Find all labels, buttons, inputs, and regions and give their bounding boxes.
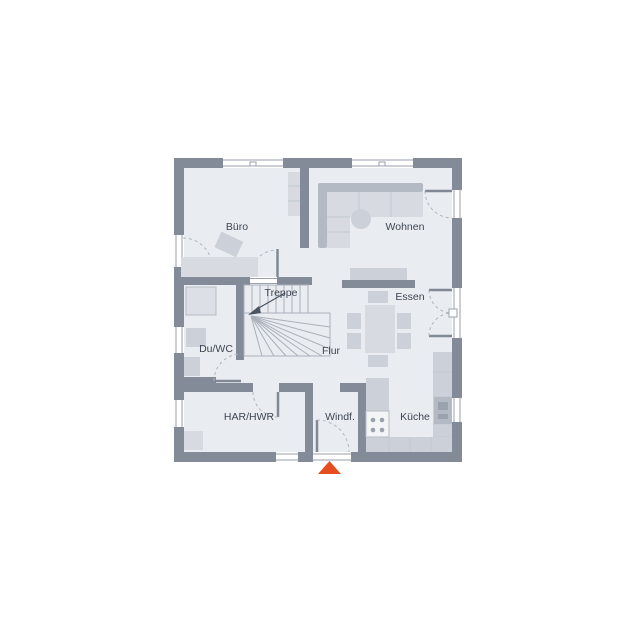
coffee-table: [351, 209, 371, 229]
utility-appliance: [184, 431, 203, 450]
wall-duwc-south: [184, 377, 216, 385]
window-har-west: [174, 400, 184, 427]
dining-chair: [397, 313, 411, 329]
oven-drawer: [438, 414, 448, 419]
label-windf: Windf.: [325, 411, 355, 423]
window-duwc-west: [174, 327, 184, 353]
label-treppe: Treppe: [265, 287, 298, 299]
buero-shelf: [288, 172, 300, 216]
window-buero-north: [223, 158, 283, 168]
oven: [434, 397, 452, 424]
dining-chair: [397, 333, 411, 349]
dining-chair: [368, 291, 388, 303]
label-essen: Essen: [395, 291, 424, 303]
kitchen-counter-south: [366, 437, 452, 452]
floor-plan-canvas: Büro Wohnen Treppe Essen Du/WC Flur HAR/…: [0, 0, 636, 636]
sideboard: [350, 268, 407, 280]
entrance-marker-icon: [318, 461, 341, 474]
wall-duwc-treppe: [236, 285, 244, 360]
sofa-seats-row: [327, 192, 423, 217]
sofa-back-left: [318, 183, 327, 248]
cooktop: [366, 411, 389, 437]
dining-chair: [368, 355, 388, 367]
wall-windf-west: [305, 383, 313, 452]
sofa-back-top: [318, 183, 423, 192]
label-flur: Flur: [322, 345, 341, 357]
window-har-south: [276, 452, 298, 462]
wall-buero-south-east: [277, 277, 312, 285]
toilet: [184, 357, 200, 376]
wall-north: [174, 158, 462, 168]
desk: [181, 257, 258, 277]
wall-wohnen-essen: [342, 280, 415, 288]
dining-chair: [347, 313, 361, 329]
wall-buero-south-west: [184, 277, 250, 285]
kitchen-counter-west: [366, 378, 389, 411]
floor-plan: Büro Wohnen Treppe Essen Du/WC Flur HAR/…: [0, 0, 636, 636]
oven-door: [438, 402, 448, 410]
label-kueche: Küche: [400, 411, 430, 423]
wall-buero-wohnen: [300, 168, 309, 248]
dining-table: [365, 305, 395, 353]
label-wohnen: Wohnen: [386, 221, 425, 233]
dining-chair: [347, 333, 361, 349]
har-fixtures: [184, 431, 203, 450]
window-kueche-east: [452, 398, 462, 422]
label-buero: Büro: [226, 221, 248, 233]
window-wohnen-north: [352, 158, 413, 168]
shower: [186, 287, 216, 315]
label-har-hwr: HAR/HWR: [224, 411, 275, 423]
label-duwc: Du/WC: [199, 343, 233, 355]
